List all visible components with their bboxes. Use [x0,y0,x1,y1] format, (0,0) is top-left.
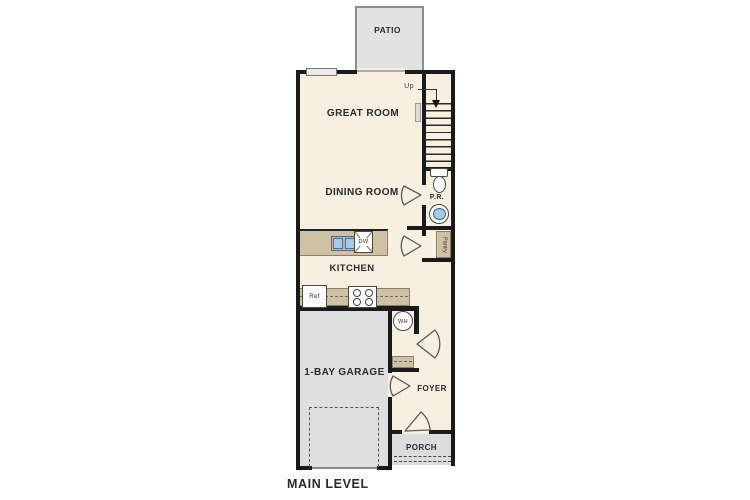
stair-handrail-mark [415,103,421,122]
page-title: MAIN LEVEL [287,477,427,491]
wall-top-right [405,70,455,74]
porch-step-line-2 [394,461,451,462]
foyer-label: FOYER [402,384,462,393]
dishwasher-label: DW [357,238,370,246]
water-heater-label: WH [396,318,410,325]
patio-slab [355,6,424,75]
burner-icon [353,289,361,297]
wall-garage-bottom-right [377,466,392,470]
great-room-label: GREAT ROOM [323,107,403,121]
wall-closet-right [414,311,419,334]
dining-room-label: DINING ROOM [322,186,402,200]
patio-label: PATIO [355,25,420,35]
window [306,68,337,76]
burner-icon [365,289,373,297]
toilet-bowl-icon [433,176,446,193]
refrigerator: Ref [302,285,327,308]
wall-pantry-left-stub [422,230,426,236]
wall-pr-pantry-divider [407,226,451,230]
island-sink-bowl-left-icon [333,238,343,249]
garage-door-line [312,467,377,469]
wall-porch-top-left [392,430,402,434]
wall-left [296,70,300,470]
floor-plan: Up Pantry DW Ref WH [0,0,750,500]
refrigerator-label: Ref [306,293,323,301]
stair-treads [426,103,451,169]
closet-shelf-dashed-line [394,361,412,362]
stairs-up-label: Up [401,82,417,91]
water-heater: WH [393,311,413,331]
pr-sink-basin-icon [433,208,446,220]
pantry-label: Pantry [441,237,447,253]
wall-porch-top-right [429,430,455,434]
garage-label: 1-BAY GARAGE [301,366,388,380]
patio-sliding-door [357,70,405,72]
dishwasher: DW [354,231,373,253]
wall-pantry-bottom [422,258,451,262]
wall-closet-bottom [390,368,419,372]
closet-shelf [392,356,414,368]
powder-room-label: P.R. [423,194,451,201]
pantry-shelf: Pantry [436,231,451,258]
kitchen-label: KITCHEN [312,263,392,274]
range [348,286,377,308]
up-arrow-hline [418,89,437,90]
up-arrow-head-icon [432,100,440,108]
porch-step-line-1 [394,456,451,457]
garage-door-dashed-area [309,407,379,467]
wall-right [451,70,455,466]
porch-label: PORCH [392,443,451,452]
wall-pr-left-upper [422,171,426,185]
burner-icon [353,298,361,306]
burner-icon [365,298,373,306]
